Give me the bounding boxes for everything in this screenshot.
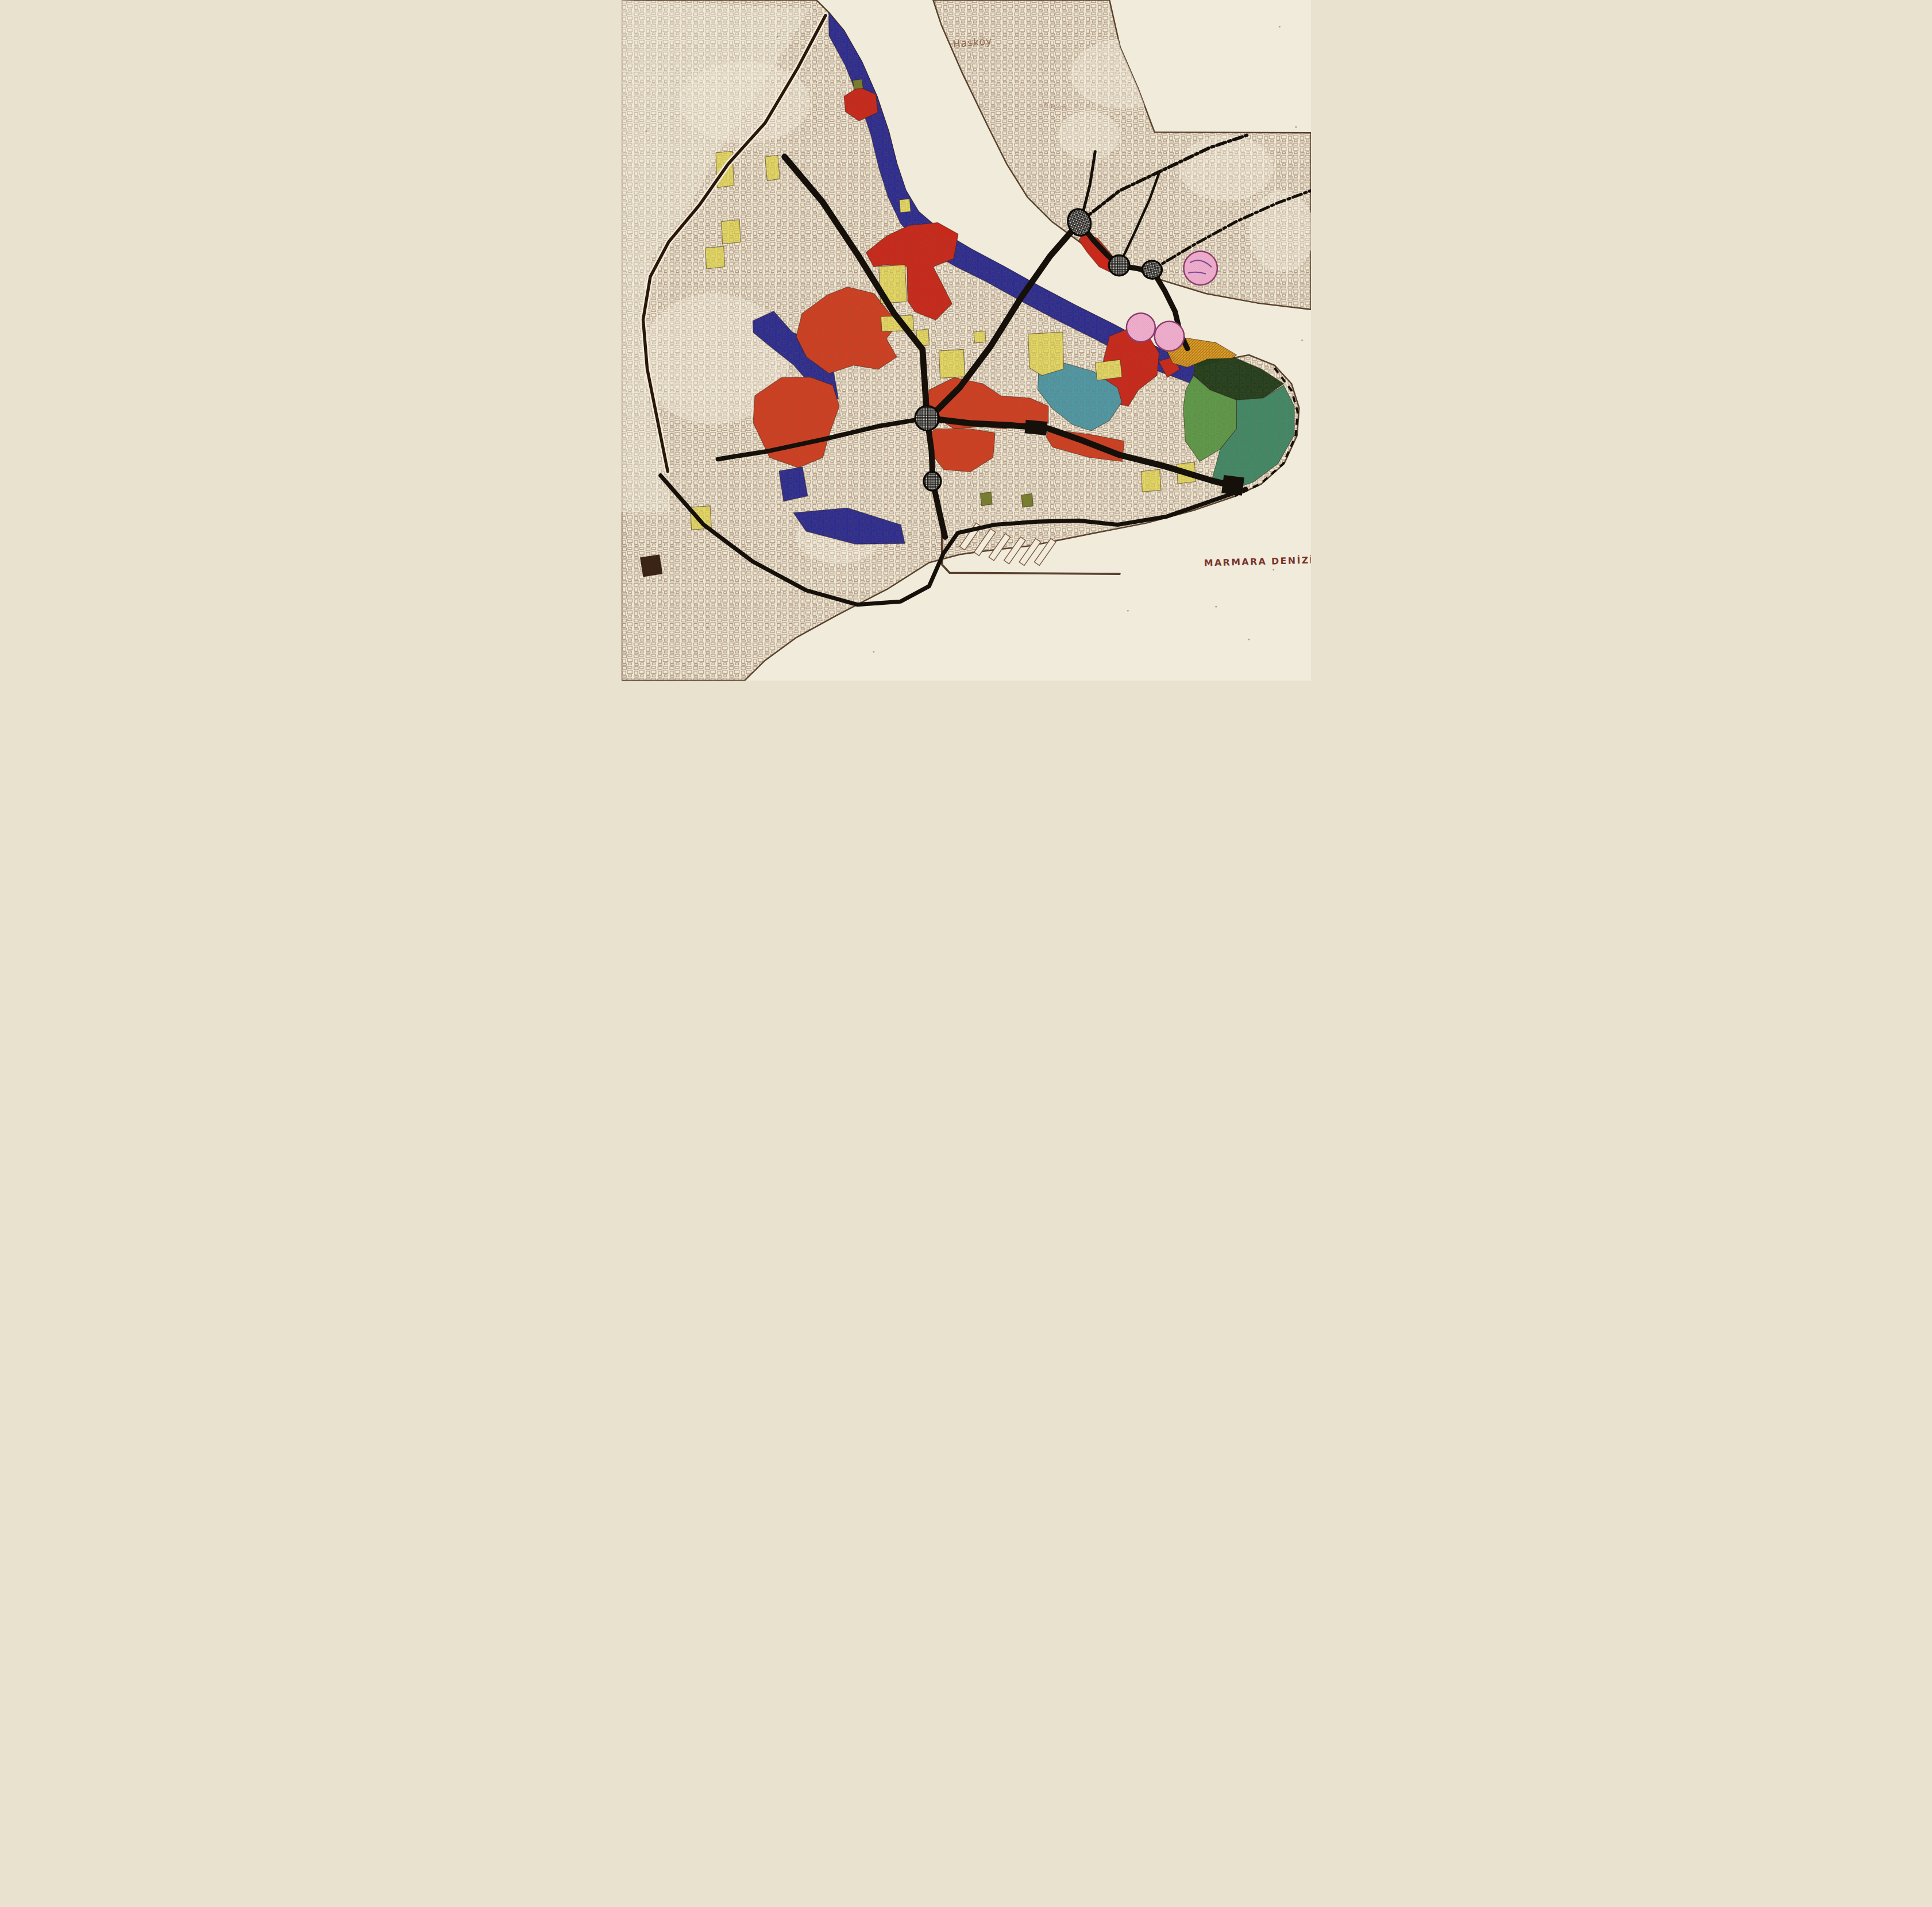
node-aksaray <box>915 406 938 431</box>
harbor-circle-east <box>1154 322 1183 351</box>
junction-square-sarayburnu <box>1221 475 1244 496</box>
label-marmara: MARMARA DENİZİ <box>1204 555 1310 569</box>
yedikule-fortress <box>640 554 662 577</box>
street-texture-overlay <box>622 0 1311 681</box>
slide-photo: HasköyKasımMARMARA DENİZİ <box>622 0 1311 681</box>
node-yenikapi <box>923 472 940 491</box>
istanbul-city-plan-map: HasköyKasımMARMARA DENİZİ <box>622 0 1311 681</box>
harbor-circle-tophane <box>1183 251 1217 285</box>
node-sishane <box>1109 255 1129 276</box>
harbor-circle-west <box>1126 313 1155 342</box>
junction-square-beyazit <box>1024 420 1047 435</box>
